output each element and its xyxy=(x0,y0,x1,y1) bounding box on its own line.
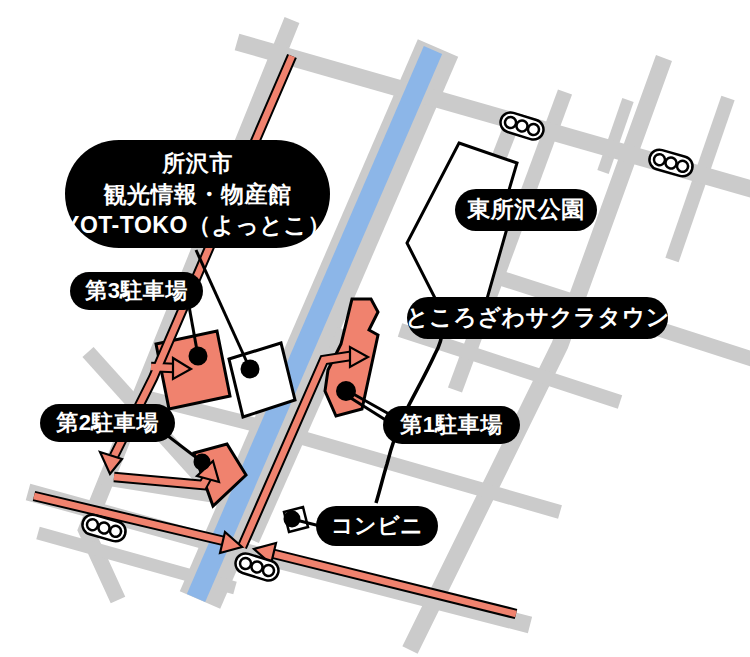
route-east-approach-fill xyxy=(266,552,516,614)
parking2-label-text: 第2駐車場 xyxy=(56,410,159,436)
parking3-label-text: 第3駐車場 xyxy=(85,278,188,304)
convenience-store-label-text: コンビニ xyxy=(331,513,423,539)
yot-toko-dot xyxy=(241,360,260,379)
label-parking3: 第3駐車場 xyxy=(70,272,203,310)
main-facility-line2: 観光情報・物産館 xyxy=(104,179,292,210)
access-map: 所沢市 観光情報・物産館 YOT-TOKO（よっとこ） 東所沢公園 ところざわサ… xyxy=(0,0,750,657)
route-into-parking3-fill xyxy=(151,367,174,368)
label-convenience-store: コンビニ xyxy=(316,506,438,546)
main-facility-line1: 所沢市 xyxy=(162,148,233,179)
sakura-town-label-text: ところざわサクラタウン xyxy=(405,304,669,332)
park-area-building xyxy=(407,143,517,320)
parking1-dot xyxy=(336,381,356,401)
main-facility-line3: YOT-TOKO（よっとこ） xyxy=(64,210,331,241)
label-sakura-town: ところざわサクラタウン xyxy=(407,297,668,339)
convenience-store-dot xyxy=(284,511,301,528)
label-parking2: 第2駐車場 xyxy=(40,404,175,442)
parking1-label-text: 第1駐車場 xyxy=(400,412,503,438)
road xyxy=(400,330,620,402)
label-parking1: 第1駐車場 xyxy=(383,406,520,444)
parking2-dot xyxy=(194,454,211,471)
label-park: 東所沢公園 xyxy=(455,189,597,231)
label-main-facility: 所沢市 観光情報・物産館 YOT-TOKO（よっとこ） xyxy=(65,140,330,248)
traffic-light-icon xyxy=(647,147,695,178)
park-label-text: 東所沢公園 xyxy=(467,196,585,224)
parking3-dot xyxy=(189,347,208,366)
